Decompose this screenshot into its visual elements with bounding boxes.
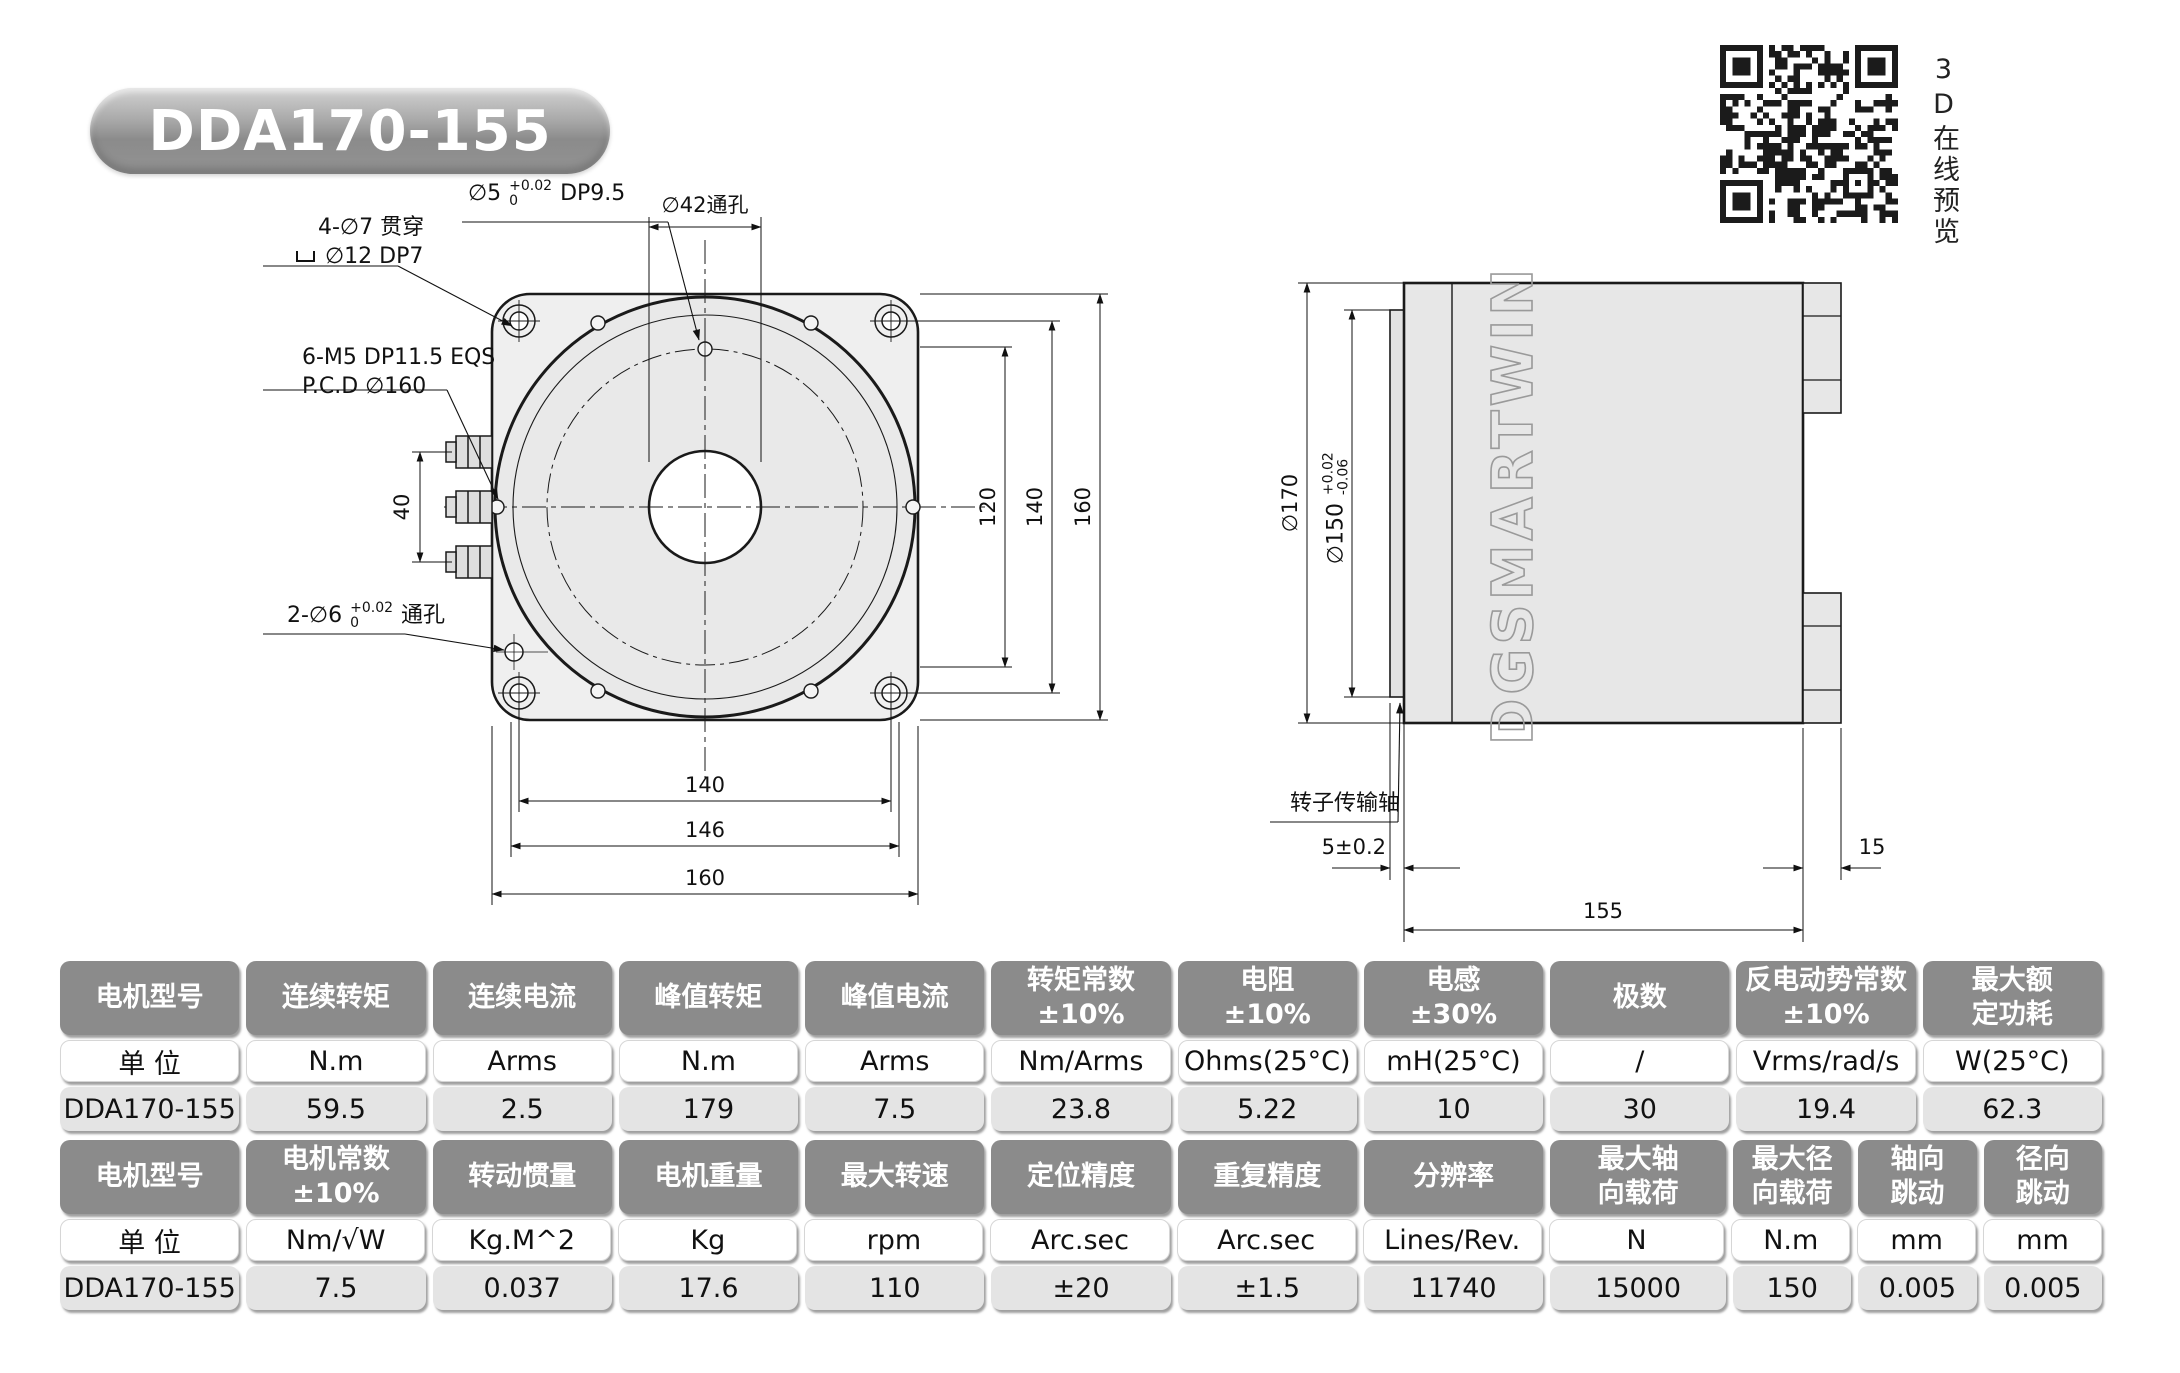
corner-hole-annotation: 4-∅7 贯穿 ∅12 DP7 <box>318 214 424 271</box>
spec-unit-cell: Arms <box>433 1040 612 1082</box>
spec-header-cell: 最大径 向载荷 <box>1733 1140 1851 1214</box>
qr-code <box>1720 45 1898 227</box>
pin-hole-depth: DP9.5 <box>560 180 625 209</box>
spec-header-cell: 峰值转矩 <box>619 961 798 1035</box>
spec-header-row: 电机型号电机常数 ±10%转动惯量电机重量最大转速定位精度重复精度分辨率最大轴 … <box>60 1140 2102 1214</box>
spec-unit-row: 单 位N.mArmsN.mArmsNm/ArmsOhms(25°C)mH(25°… <box>60 1040 2102 1082</box>
spec-unit-cell: Kg <box>618 1219 797 1261</box>
tol-zero: 0 <box>509 194 518 209</box>
spec-value-cell: 19.4 <box>1736 1087 1915 1131</box>
spec-header-cell: 最大额 定功耗 <box>1923 961 2102 1035</box>
spec-header-cell: 电机型号 <box>60 1140 239 1214</box>
dim-140-bottom: 140 <box>685 773 725 797</box>
spec-unit-cell: Nm/Arms <box>991 1040 1170 1082</box>
spec-value-cell: ±20 <box>991 1266 1170 1310</box>
spec-unit-cell: Arms <box>805 1040 984 1082</box>
spec-header-cell: 电机常数 ±10% <box>246 1140 425 1214</box>
spec-unit-cell: N.m <box>1731 1219 1850 1261</box>
dim-160-vert: 160 <box>1071 487 1095 527</box>
counterbore-icon <box>296 251 315 262</box>
spec-value-cell: 0.037 <box>433 1266 612 1310</box>
spec-value-cell: 10 <box>1364 1087 1543 1131</box>
spec-value-cell: DDA170-155 <box>60 1266 239 1310</box>
spec-value-cell: 179 <box>619 1087 798 1131</box>
spec-header-cell: 连续转矩 <box>246 961 425 1035</box>
spec-value-cell: 5.22 <box>1178 1087 1357 1131</box>
model-title: DDA170-155 <box>148 99 551 164</box>
spec-value-row: DDA170-15559.52.51797.523.85.22103019.46… <box>60 1087 2102 1131</box>
dim-15: 15 <box>1859 835 1886 859</box>
spec-header-cell: 转动惯量 <box>433 1140 612 1214</box>
through-hole-diameter: 2-∅6 <box>287 602 342 631</box>
through-hole-suffix: 通孔 <box>401 602 445 631</box>
corner-hole-line2: ∅12 DP7 <box>325 243 423 272</box>
spec-header-cell: 反电动势常数 ±10% <box>1736 961 1915 1035</box>
tapped-hole-annotation: 6-M5 DP11.5 EQS P.C.D ∅160 <box>302 344 495 401</box>
spec-value-cell: 7.5 <box>246 1266 425 1310</box>
tapped-hole-line1: 6-M5 DP11.5 EQS <box>302 344 495 373</box>
spec-header-cell: 连续电流 <box>433 961 612 1035</box>
spec-header-cell: 轴向 跳动 <box>1858 1140 1976 1214</box>
spec-value-cell: 59.5 <box>246 1087 425 1131</box>
tol-zero: 0 <box>350 616 359 631</box>
spec-value-cell: 30 <box>1550 1087 1729 1131</box>
spec-value-cell: 7.5 <box>805 1087 984 1131</box>
spec-value-cell: 15000 <box>1550 1266 1726 1310</box>
spec-header-cell: 最大轴 向载荷 <box>1550 1140 1726 1214</box>
dim-140-vert: 140 <box>1023 487 1047 527</box>
spec-unit-cell: W(25°C) <box>1923 1040 2102 1082</box>
tolerance-stack: +0.02 0 <box>350 601 393 630</box>
spec-header-cell: 电感 ±30% <box>1364 961 1543 1035</box>
spec-unit-cell: N.m <box>246 1040 425 1082</box>
tolerance-stack: +0.02 -0.06 <box>1321 452 1350 495</box>
shaft-annotation: 转子传输轴 <box>1290 790 1400 819</box>
spec-header-cell: 最大转速 <box>805 1140 984 1214</box>
spec-value-cell: 0.005 <box>1984 1266 2102 1310</box>
spec-header-cell: 电机型号 <box>60 961 239 1035</box>
spec-unit-cell: Arc.sec <box>990 1219 1169 1261</box>
dim-dia170: ∅170 <box>1278 474 1302 532</box>
spec-value-cell: ±1.5 <box>1178 1266 1357 1310</box>
tol-plus: +0.02 <box>350 601 393 616</box>
tapped-hole-line2: P.C.D ∅160 <box>302 373 495 402</box>
through-hole-annotation: 2-∅6 +0.02 0 通孔 <box>287 602 445 631</box>
spec-header-row: 电机型号连续转矩连续电流峰值转矩峰值电流转矩常数 ±10%电阻 ±10%电感 ±… <box>60 961 2102 1035</box>
spec-unit-cell: Ohms(25°C) <box>1178 1040 1357 1082</box>
corner-hole-line1: 4-∅7 贯穿 <box>318 214 424 243</box>
spec-unit-cell: Lines/Rev. <box>1363 1219 1542 1261</box>
spec-header-cell: 峰值电流 <box>805 961 984 1035</box>
spec-unit-cell: 单 位 <box>60 1040 239 1082</box>
spec-value-cell: 17.6 <box>619 1266 798 1310</box>
spec-unit-cell: mm <box>1857 1219 1976 1261</box>
tol-plus: +0.02 <box>509 179 552 194</box>
qr-code-image <box>1720 45 1898 223</box>
tol-minus: -0.06 <box>1336 459 1351 495</box>
spec-value-cell: 150 <box>1733 1266 1851 1310</box>
dim-40: 40 <box>390 494 414 521</box>
spec-value-cell: 2.5 <box>433 1087 612 1131</box>
spec-unit-cell: mH(25°C) <box>1364 1040 1543 1082</box>
spec-unit-row: 单 位Nm/√WKg.M^2KgrpmArc.secArc.secLines/R… <box>60 1219 2102 1261</box>
spec-value-cell: 23.8 <box>991 1087 1170 1131</box>
spec-tables: 电机型号连续转矩连续电流峰值转矩峰值电流转矩常数 ±10%电阻 ±10%电感 ±… <box>60 961 2102 1315</box>
spec-header-cell: 径向 跳动 <box>1984 1140 2102 1214</box>
spec-unit-cell: mm <box>1983 1219 2102 1261</box>
spec-table-mechanical: 电机型号电机常数 ±10%转动惯量电机重量最大转速定位精度重复精度分辨率最大轴 … <box>60 1140 2102 1310</box>
spec-value-cell: 62.3 <box>1923 1087 2102 1131</box>
pin-hole-annotation: ∅5 +0.02 0 DP9.5 <box>468 180 625 209</box>
spec-header-cell: 定位精度 <box>991 1140 1170 1214</box>
tol-plus: +0.02 <box>1321 452 1336 495</box>
spec-header-cell: 分辨率 <box>1364 1140 1543 1214</box>
spec-unit-cell: Nm/√W <box>246 1219 425 1261</box>
spec-value-cell: 0.005 <box>1858 1266 1976 1310</box>
spec-value-cell: DDA170-155 <box>60 1087 239 1131</box>
pin-hole-diameter: ∅5 <box>468 180 501 209</box>
spec-unit-cell: N.m <box>619 1040 798 1082</box>
center-hole-dim-label: ∅42通孔 <box>661 193 748 217</box>
front-view-drawing: ∅42通孔 40 120 140 160 140 146 160 <box>250 175 1130 955</box>
side-view-drawing: DGSMARTWIN ∅170 5±0.2 155 15 <box>1240 230 1940 960</box>
brand-logo-text: DGSMARTWIN <box>1481 265 1546 745</box>
spec-header-cell: 重复精度 <box>1178 1140 1357 1214</box>
qr-caption: 3D在线预览 <box>1924 54 1963 254</box>
spec-unit-cell: Arc.sec <box>1177 1219 1356 1261</box>
spec-value-row: DDA170-1557.50.03717.6110±20±1.511740150… <box>60 1266 2102 1310</box>
spec-header-cell: 转矩常数 ±10% <box>991 961 1170 1035</box>
dim-120: 120 <box>976 487 1000 527</box>
spec-unit-cell: Vrms/rad/s <box>1736 1040 1915 1082</box>
dim-5: 5±0.2 <box>1322 835 1386 859</box>
tolerance-stack: +0.02 0 <box>509 179 552 208</box>
spec-unit-cell: Kg.M^2 <box>432 1219 611 1261</box>
spec-unit-cell: rpm <box>804 1219 983 1261</box>
dia150-text: ∅150 <box>1323 503 1352 564</box>
spec-header-cell: 电机重量 <box>619 1140 798 1214</box>
spec-value-cell: 110 <box>805 1266 984 1310</box>
dim-146-bottom: 146 <box>685 818 725 842</box>
dim-160-bottom: 160 <box>685 866 725 890</box>
model-title-badge: DDA170-155 <box>90 88 610 174</box>
spec-unit-cell: 单 位 <box>60 1219 239 1261</box>
dia150-annotation: ∅150 +0.02 -0.06 <box>1322 432 1351 582</box>
spec-unit-cell: / <box>1550 1040 1729 1082</box>
dim-155: 155 <box>1583 899 1623 923</box>
spec-header-cell: 电阻 ±10% <box>1178 961 1357 1035</box>
spec-unit-cell: N <box>1549 1219 1725 1261</box>
spec-header-cell: 极数 <box>1550 961 1729 1035</box>
spec-value-cell: 11740 <box>1364 1266 1543 1310</box>
spec-table-electrical: 电机型号连续转矩连续电流峰值转矩峰值电流转矩常数 ±10%电阻 ±10%电感 ±… <box>60 961 2102 1131</box>
